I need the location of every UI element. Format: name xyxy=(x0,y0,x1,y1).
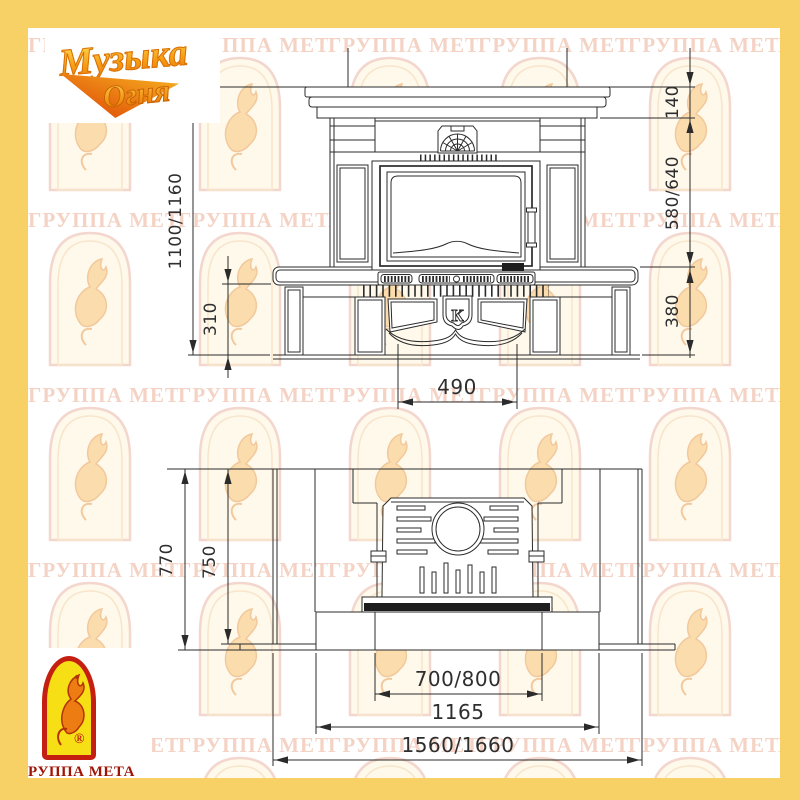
shell-ornament xyxy=(438,126,477,153)
door-handle xyxy=(528,211,535,244)
logo-word-2: Огня xyxy=(101,73,171,116)
dim-body-width: 1165 xyxy=(432,700,485,724)
firebox-door xyxy=(372,161,540,271)
badge-letter: К xyxy=(451,306,464,325)
dim-arch-width: 490 xyxy=(437,375,477,399)
pilaster-right xyxy=(547,165,578,262)
flue-outlet xyxy=(432,503,484,555)
dim-height-total: 1100/1160 xyxy=(166,173,186,270)
dim-total-width: 1560/1660 xyxy=(401,733,514,757)
dim-plinth-height: 380 xyxy=(663,294,683,328)
front-block xyxy=(316,612,599,650)
firebox-plan xyxy=(362,498,552,612)
dim-mantel-height: 140 xyxy=(663,85,683,119)
pilaster-left xyxy=(337,165,368,262)
dim-depth-total: 770 xyxy=(157,543,177,577)
brand-logo-muzyka-ognya: Музыка Огня xyxy=(45,28,220,123)
dim-depth-body: 750 xyxy=(200,545,220,579)
screenshot-root: ГРУППА МЕТА xyxy=(0,0,800,800)
dim-base-height: 310 xyxy=(201,302,221,336)
door-latch xyxy=(502,263,524,271)
company-name: ГРУППА МЕТА xyxy=(18,764,135,781)
firebird-emblem xyxy=(42,656,96,760)
dim-firebox-height: 580/640 xyxy=(663,156,683,230)
dim-hearth-front-width: 700/800 xyxy=(415,667,502,691)
vent-strip xyxy=(378,272,535,285)
mantel-shelf xyxy=(305,87,610,118)
registered-mark: ® xyxy=(74,732,84,748)
company-logo-gruppa-meta: ® ГРУППА МЕТА xyxy=(12,648,152,782)
